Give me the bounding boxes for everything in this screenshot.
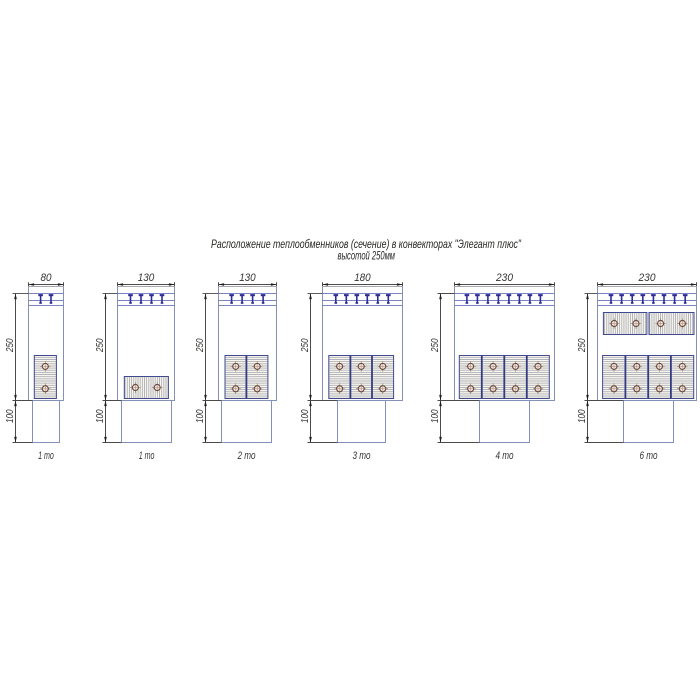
svg-text:250: 250 xyxy=(577,338,588,353)
svg-text:250: 250 xyxy=(95,338,106,353)
svg-text:100: 100 xyxy=(195,409,206,423)
svg-text:130: 130 xyxy=(138,272,155,284)
svg-text:1 то: 1 то xyxy=(38,450,54,462)
svg-text:высотой 250мм: высотой 250мм xyxy=(338,249,396,263)
svg-text:100: 100 xyxy=(430,409,441,423)
svg-text:4 то: 4 то xyxy=(496,450,514,462)
svg-text:1 то: 1 то xyxy=(139,450,155,462)
svg-text:100: 100 xyxy=(577,409,588,423)
svg-text:250: 250 xyxy=(5,338,16,353)
svg-text:230: 230 xyxy=(495,272,513,284)
svg-text:180: 180 xyxy=(354,272,371,284)
svg-text:130: 130 xyxy=(239,272,256,284)
svg-text:250: 250 xyxy=(300,338,311,353)
svg-text:80: 80 xyxy=(41,272,52,284)
svg-text:3 то: 3 то xyxy=(353,450,371,462)
svg-text:6 то: 6 то xyxy=(640,450,658,462)
svg-text:2 то: 2 то xyxy=(237,450,256,462)
svg-text:100: 100 xyxy=(300,409,311,423)
svg-text:250: 250 xyxy=(195,338,206,353)
svg-text:250: 250 xyxy=(430,338,441,353)
svg-text:230: 230 xyxy=(638,272,656,284)
svg-text:100: 100 xyxy=(95,409,106,423)
svg-text:100: 100 xyxy=(5,409,16,423)
